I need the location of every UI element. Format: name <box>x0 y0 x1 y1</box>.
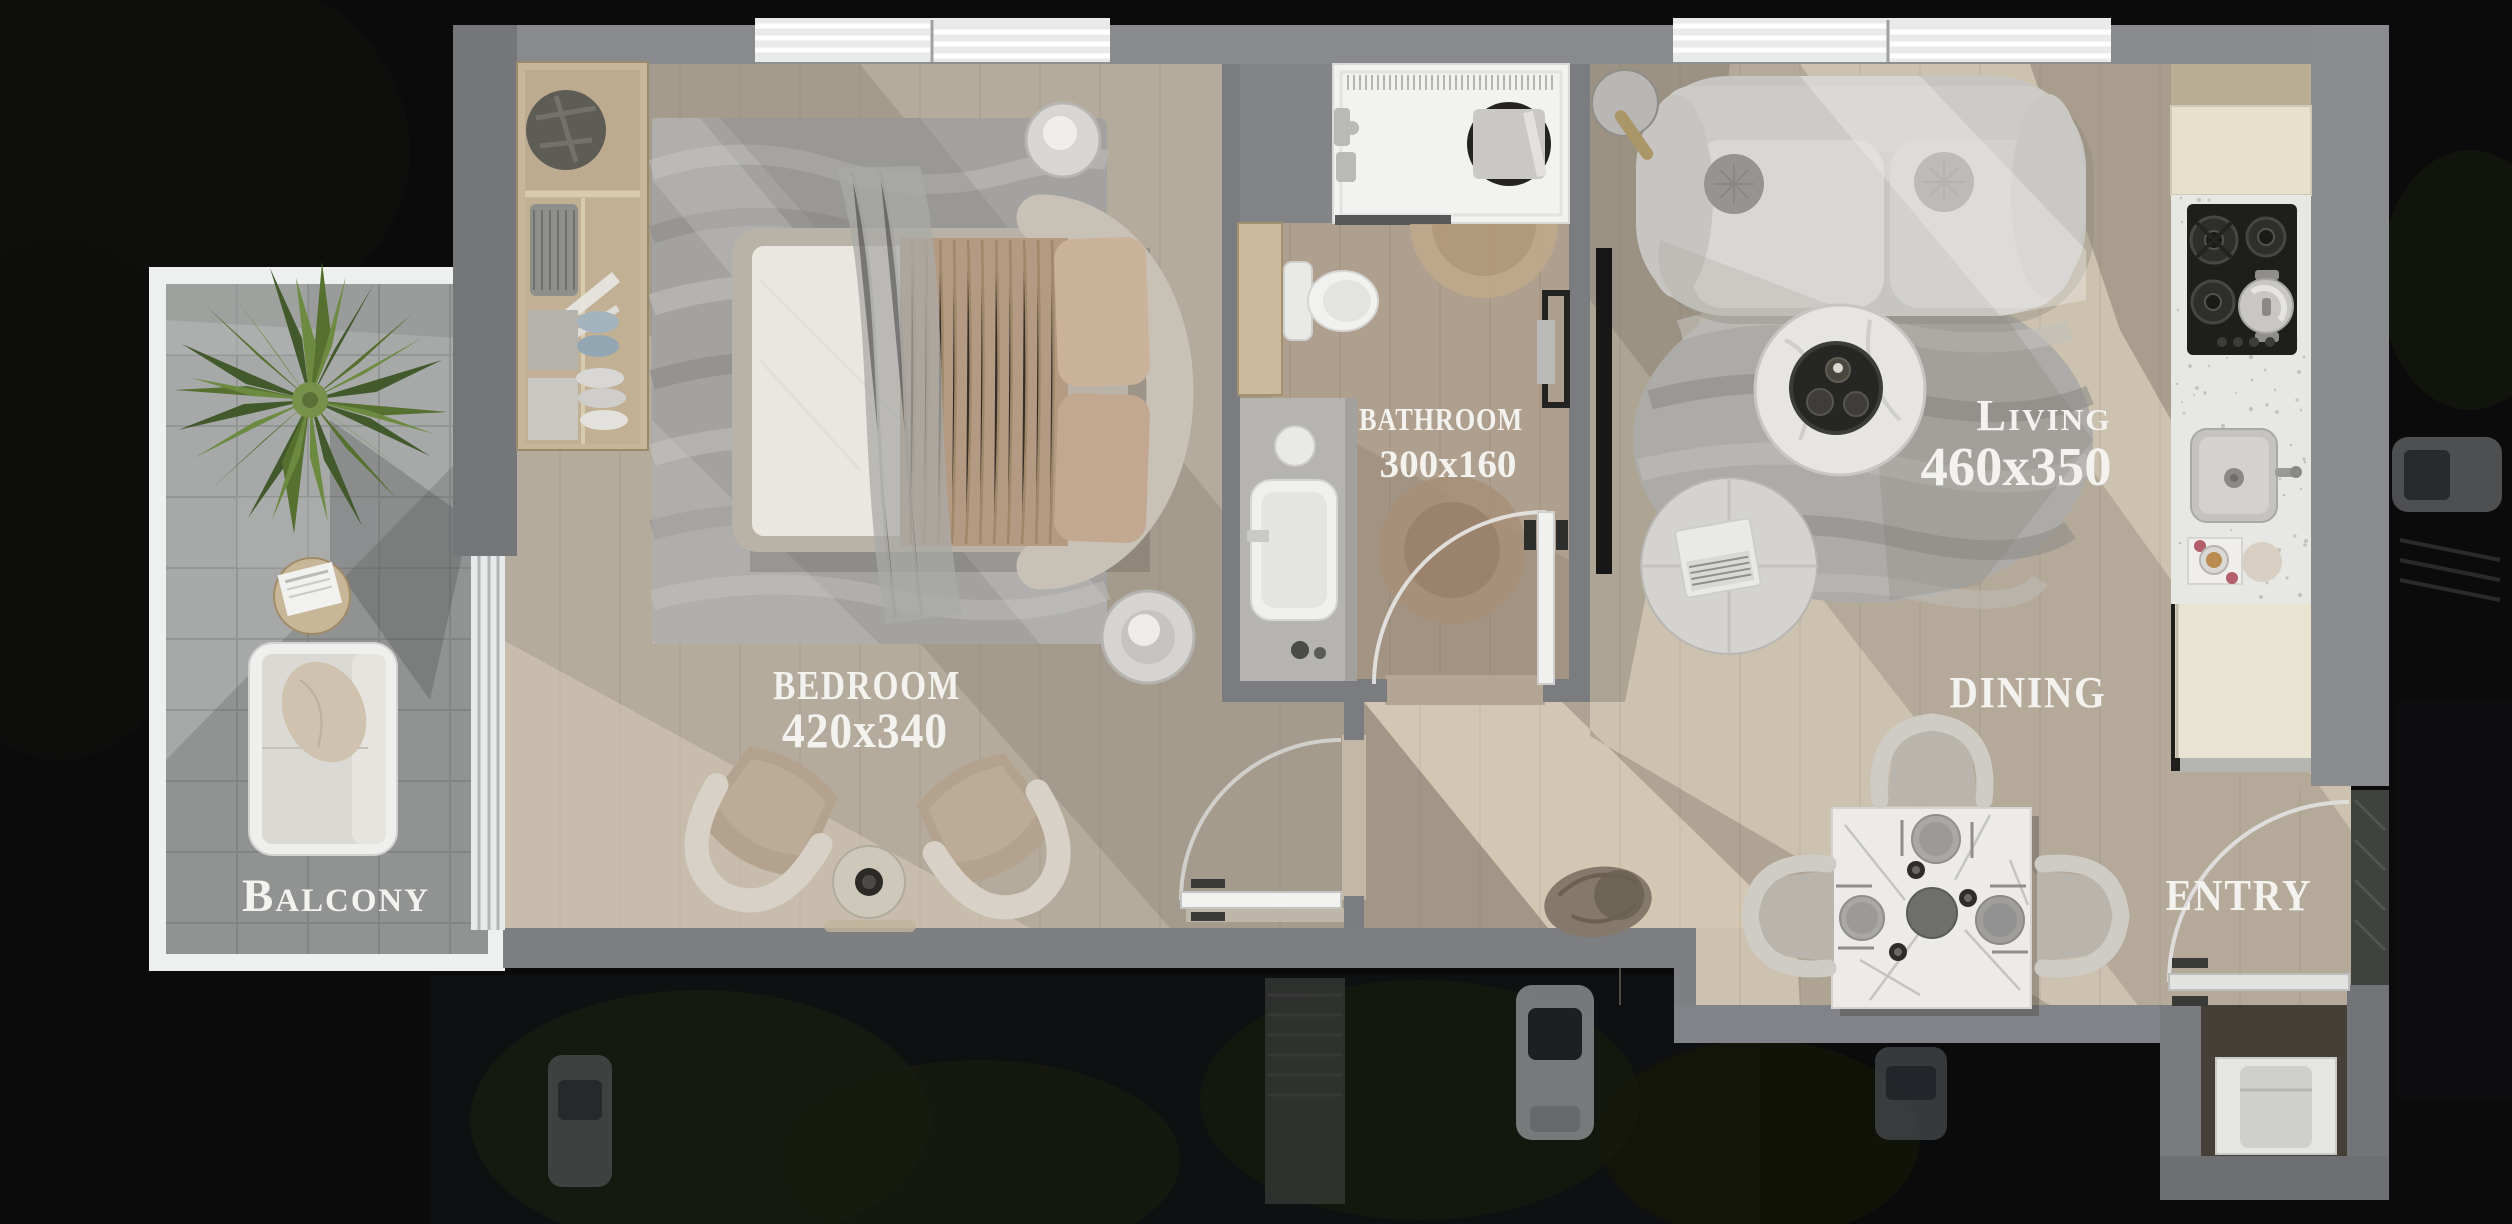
svg-text:ENTRY: ENTRY <box>2166 871 2313 920</box>
svg-text:460x350: 460x350 <box>1921 436 2112 497</box>
svg-text:420x340: 420x340 <box>782 702 948 758</box>
svg-text:BATHROOM: BATHROOM <box>1359 402 1523 437</box>
svg-text:Living: Living <box>1977 391 2112 440</box>
svg-text:DINING: DINING <box>1950 668 2107 717</box>
svg-text:300x160: 300x160 <box>1380 443 1517 486</box>
svg-text:Balcony: Balcony <box>242 870 430 922</box>
